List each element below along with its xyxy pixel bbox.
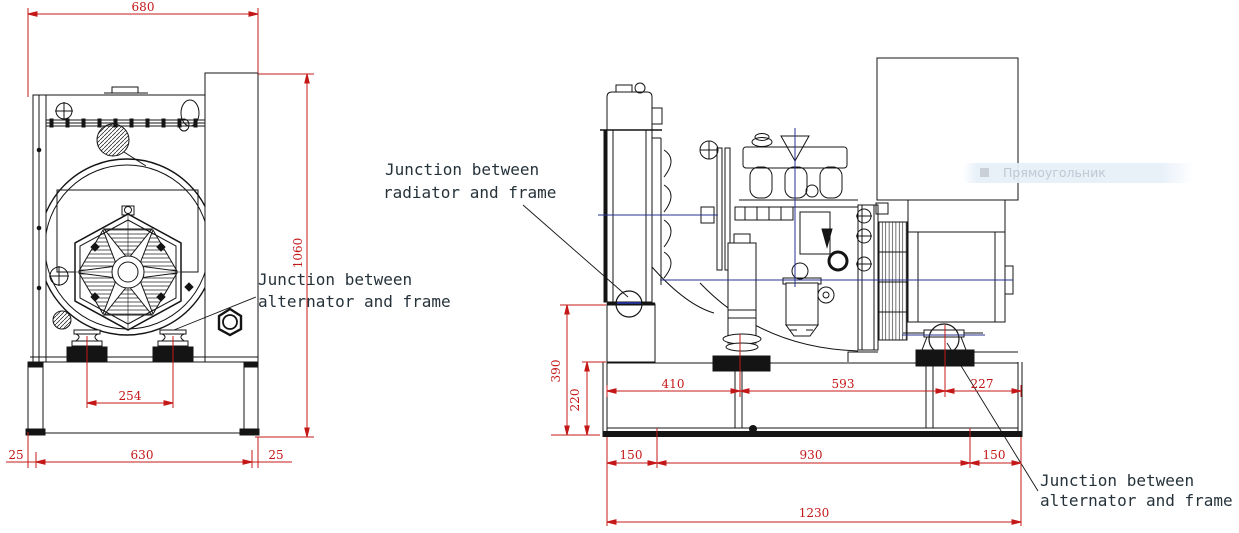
- front-view: [26, 73, 259, 435]
- alternator-grille: [879, 222, 907, 340]
- oil-filter: [786, 283, 818, 325]
- leader-radiator: [523, 205, 628, 297]
- side-view: [523, 58, 1038, 491]
- dim-930: 930: [800, 448, 823, 462]
- dim-25-right: 25: [268, 448, 283, 462]
- fuel-filter: [728, 243, 756, 343]
- radiator-cap: [112, 87, 138, 93]
- dim-390: 390: [549, 360, 563, 383]
- rectangle-icon: [980, 168, 989, 177]
- annotation-alternator-side-line1: Junction between: [1040, 471, 1194, 490]
- flywheel-housing: [858, 205, 878, 350]
- radiator-mount: [607, 304, 655, 362]
- leader-alternator-side: [947, 343, 1038, 491]
- dim-25-left: 25: [8, 448, 23, 462]
- dim-410: 410: [662, 377, 685, 391]
- annotation-alternator-front-line1: Junction between: [258, 270, 412, 289]
- dim-1060: 1060: [291, 238, 305, 269]
- front-base-frame: [26, 357, 259, 435]
- radiator-cap-side: [616, 85, 632, 92]
- dim-680: 680: [132, 0, 155, 14]
- fan-guard: [75, 206, 193, 330]
- dim-220: 220: [568, 389, 582, 412]
- dim-254: 254: [119, 389, 142, 403]
- side-radiator: [600, 83, 714, 362]
- hose-port: [97, 124, 129, 156]
- dim-593: 593: [832, 377, 855, 391]
- generator-drawing-page: 680 1060 254 25 630 25 390 220 410 593 2…: [0, 0, 1239, 533]
- dim-1230: 1230: [799, 506, 830, 520]
- shape-tooltip: Прямоугольник: [963, 163, 1193, 183]
- side-frame: [603, 362, 1022, 437]
- front-right-column: [205, 73, 258, 362]
- dim-150-right: 150: [983, 448, 1006, 462]
- shape-tooltip-label: Прямоугольник: [1003, 164, 1106, 182]
- leader-alternator-front: [174, 297, 256, 330]
- drain-plug-dot: [749, 425, 757, 433]
- dim-150-left: 150: [620, 448, 643, 462]
- annotation-alternator-front-line2: alternator and frame: [258, 292, 451, 311]
- dim-227: 227: [971, 377, 994, 391]
- annotation-radiator-frame-line1: Junction between: [385, 160, 539, 179]
- dim-630: 630: [131, 448, 154, 462]
- drawing-canvas: 680 1060 254 25 630 25 390 220 410 593 2…: [0, 0, 1239, 533]
- annotation-alternator-side-line2: alternator and frame: [1040, 491, 1233, 510]
- annotation-radiator-frame-line2: radiator and frame: [383, 183, 556, 202]
